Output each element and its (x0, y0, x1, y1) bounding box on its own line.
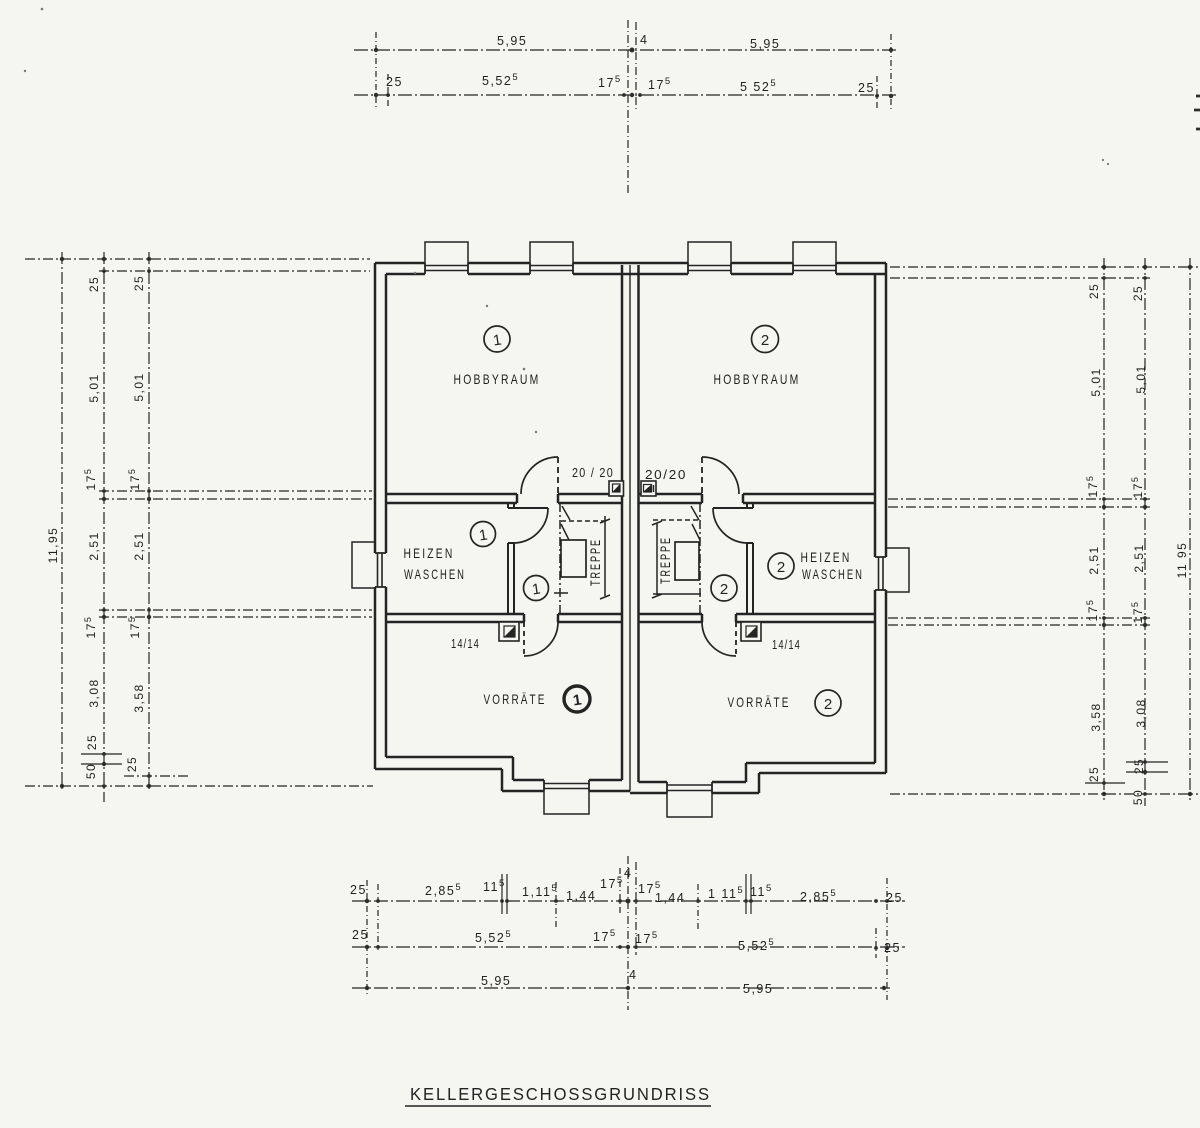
svg-text:5,01: 5,01 (1134, 364, 1148, 393)
svg-text:50: 50 (1131, 789, 1145, 805)
svg-text:TREPPE: TREPPE (587, 538, 603, 586)
svg-text:5,01: 5,01 (87, 373, 101, 402)
svg-text:HEIZEN: HEIZEN (404, 545, 455, 561)
svg-text:2,51: 2,51 (1132, 543, 1146, 572)
svg-text:20 / 20: 20 / 20 (572, 466, 614, 480)
svg-text:11 95: 11 95 (1175, 542, 1189, 579)
svg-text:25: 25 (886, 891, 903, 905)
svg-text:2: 2 (720, 581, 728, 598)
svg-text:25: 25 (1087, 766, 1101, 782)
svg-text:3,58: 3,58 (1089, 702, 1103, 731)
svg-text:5,95: 5,95 (481, 974, 511, 988)
svg-text:1,44: 1,44 (566, 889, 596, 903)
svg-text:50: 50 (84, 763, 98, 779)
svg-text:14/14: 14/14 (772, 638, 801, 652)
svg-text:5,01: 5,01 (132, 372, 146, 401)
svg-text:WASCHEN: WASCHEN (404, 566, 466, 582)
svg-text:VORRÄTE: VORRÄTE (484, 691, 547, 707)
svg-text:5,01: 5,01 (1089, 367, 1103, 396)
svg-text:25: 25 (125, 756, 139, 772)
svg-text:25: 25 (132, 275, 146, 291)
svg-text:VORRÄTE: VORRÄTE (728, 694, 791, 710)
svg-text:KELLERGESCHOSSGRUNDRISS: KELLERGESCHOSSGRUNDRISS (410, 1084, 711, 1104)
svg-text:25: 25 (1132, 758, 1146, 774)
svg-text:25: 25 (386, 75, 403, 89)
svg-text:20/20: 20/20 (645, 468, 687, 482)
svg-text:25: 25 (858, 81, 875, 95)
svg-text:14/14: 14/14 (451, 637, 480, 651)
svg-text:25: 25 (87, 276, 101, 292)
svg-text:2: 2 (777, 559, 785, 576)
svg-text:2: 2 (761, 332, 769, 349)
svg-text:WASCHEN: WASCHEN (802, 566, 864, 582)
svg-text:TREPPE: TREPPE (657, 536, 673, 584)
svg-text:3,08: 3,08 (1134, 698, 1148, 727)
svg-text:4: 4 (640, 33, 648, 47)
svg-text:HOBBYRAUM: HOBBYRAUM (714, 371, 801, 387)
svg-text:25: 25 (352, 928, 369, 942)
svg-text:25: 25 (350, 883, 367, 897)
svg-text:HOBBYRAUM: HOBBYRAUM (454, 371, 541, 387)
svg-text:25: 25 (1131, 285, 1145, 301)
svg-text:3,08: 3,08 (87, 678, 101, 707)
svg-text:HEIZEN: HEIZEN (801, 549, 852, 565)
svg-text:4: 4 (624, 866, 632, 880)
svg-text:3,58: 3,58 (132, 683, 146, 712)
svg-text:1,44: 1,44 (655, 891, 685, 905)
svg-text:25: 25 (1087, 283, 1101, 299)
svg-text:25: 25 (884, 941, 901, 955)
svg-text:5,95: 5,95 (743, 982, 773, 996)
svg-text:2,51: 2,51 (1087, 545, 1101, 574)
svg-text:2: 2 (824, 696, 832, 713)
svg-text:5,95: 5,95 (497, 34, 527, 48)
svg-text:25: 25 (85, 734, 99, 750)
svg-text:11,95: 11,95 (46, 527, 60, 564)
svg-text:4: 4 (629, 968, 637, 982)
svg-text:2,51: 2,51 (87, 531, 101, 560)
svg-text:5,95: 5,95 (750, 37, 780, 51)
svg-text:2,51: 2,51 (132, 531, 146, 560)
